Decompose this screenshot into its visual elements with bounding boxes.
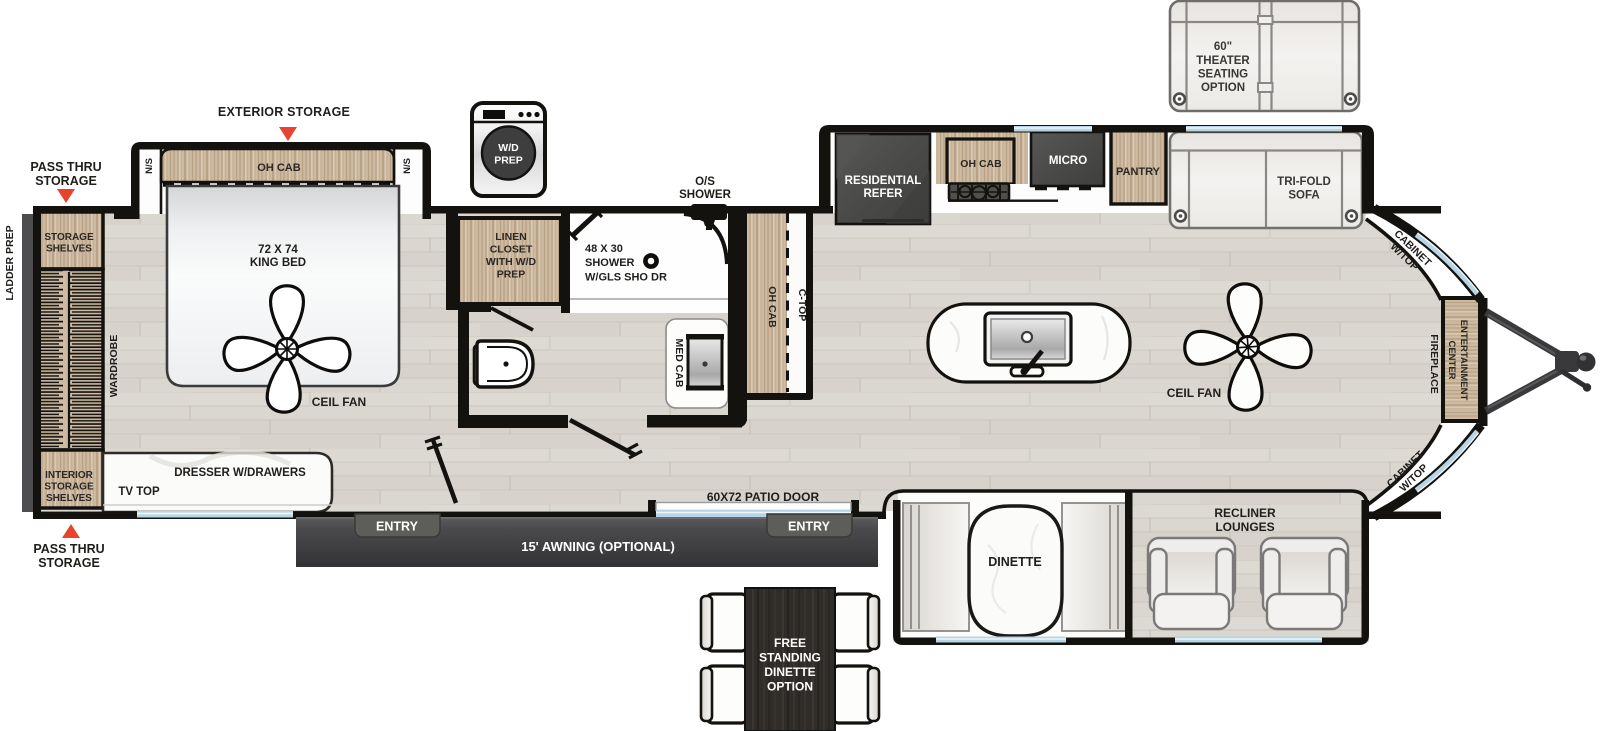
svg-text:STORAGE: STORAGE [44, 482, 94, 493]
svg-text:W/GLS SHO DR: W/GLS SHO DR [585, 272, 667, 284]
svg-text:SOFA: SOFA [1288, 190, 1319, 202]
svg-text:DINETTE: DINETTE [764, 665, 815, 679]
svg-text:O/S: O/S [695, 176, 715, 188]
svg-text:MED CAB: MED CAB [673, 339, 685, 388]
svg-text:SEATING: SEATING [1198, 69, 1248, 81]
svg-text:PANTRY: PANTRY [1116, 166, 1161, 178]
svg-text:72 X 74: 72 X 74 [258, 244, 298, 256]
svg-text:48 X 30: 48 X 30 [585, 243, 623, 255]
svg-text:ENTRY: ENTRY [788, 520, 831, 534]
svg-text:SHELVES: SHELVES [46, 493, 92, 504]
svg-text:OH CAB: OH CAB [960, 158, 1002, 170]
svg-text:SHELVES: SHELVES [46, 244, 92, 255]
svg-text:LADDER PREP: LADDER PREP [4, 225, 16, 300]
svg-text:DINETTE: DINETTE [988, 555, 1041, 569]
svg-text:PREP: PREP [497, 269, 526, 281]
svg-text:DRESSER W/DRAWERS: DRESSER W/DRAWERS [174, 467, 306, 479]
svg-text:MICRO: MICRO [1049, 155, 1087, 167]
svg-text:60X72 PATIO DOOR: 60X72 PATIO DOOR [707, 490, 820, 504]
svg-text:C-TOP: C-TOP [796, 289, 808, 321]
svg-text:SHOWER: SHOWER [585, 257, 635, 269]
svg-text:RESIDENTIAL: RESIDENTIAL [845, 175, 922, 187]
svg-text:THEATER: THEATER [1196, 55, 1250, 67]
svg-text:RECLINER: RECLINER [1214, 506, 1276, 520]
svg-text:CEIL FAN: CEIL FAN [1167, 386, 1221, 400]
svg-text:STANDING: STANDING [759, 651, 821, 665]
svg-text:WARDROBE: WARDROBE [108, 335, 120, 397]
svg-text:OH CAB: OH CAB [766, 286, 778, 328]
svg-text:15' AWNING (OPTIONAL): 15' AWNING (OPTIONAL) [521, 539, 675, 554]
svg-text:FIREPLACE: FIREPLACE [1428, 334, 1440, 394]
svg-text:CLOSET: CLOSET [490, 244, 533, 256]
svg-text:CEIL FAN: CEIL FAN [312, 395, 366, 409]
svg-text:N/S: N/S [402, 158, 413, 174]
svg-text:PASS THRU: PASS THRU [30, 160, 101, 174]
svg-text:STORAGE: STORAGE [35, 174, 97, 188]
svg-text:EXTERIOR STORAGE: EXTERIOR STORAGE [218, 105, 350, 119]
svg-text:CENTER: CENTER [1446, 340, 1457, 379]
svg-text:ENTERTAINMENT: ENTERTAINMENT [1458, 320, 1469, 401]
svg-text:INTERIOR: INTERIOR [45, 470, 94, 481]
svg-text:TRI-FOLD: TRI-FOLD [1277, 176, 1331, 188]
svg-text:60": 60" [1214, 41, 1232, 53]
svg-text:OPTION: OPTION [1201, 82, 1245, 94]
svg-text:LINEN: LINEN [495, 231, 527, 243]
svg-text:PREP: PREP [494, 155, 523, 167]
svg-text:OH CAB: OH CAB [257, 162, 300, 174]
svg-text:FREE: FREE [774, 636, 806, 650]
svg-text:KING BED: KING BED [250, 257, 306, 269]
svg-text:REFER: REFER [864, 188, 904, 200]
svg-text:TV TOP: TV TOP [118, 486, 160, 498]
svg-text:STORAGE: STORAGE [38, 556, 100, 570]
svg-text:N/S: N/S [144, 158, 155, 174]
svg-text:OPTION: OPTION [767, 680, 813, 694]
svg-text:PASS THRU: PASS THRU [33, 542, 104, 556]
svg-text:STORAGE: STORAGE [44, 232, 94, 243]
svg-text:WITH W/D: WITH W/D [486, 256, 537, 268]
svg-text:W/D: W/D [498, 142, 519, 154]
svg-text:LOUNGES: LOUNGES [1215, 520, 1274, 534]
svg-text:ENTRY: ENTRY [376, 520, 419, 534]
svg-text:SHOWER: SHOWER [679, 189, 731, 201]
